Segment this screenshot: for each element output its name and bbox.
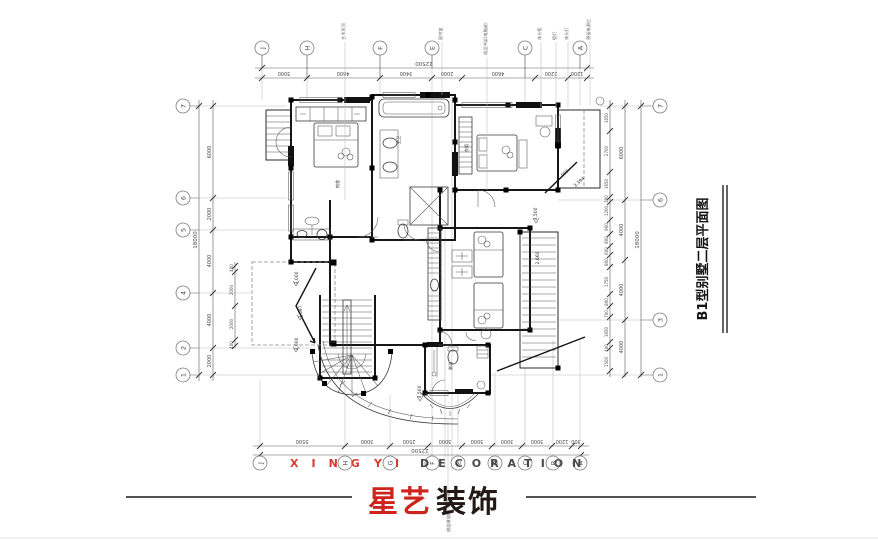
drawing-title-block: B1型别墅二层平面图 bbox=[695, 185, 727, 333]
dim-right-small: 1200 bbox=[604, 205, 609, 216]
dim-bottom-seg: 5500 bbox=[296, 438, 309, 444]
dim-left-small: 400 bbox=[229, 341, 234, 349]
dim-top-seg: 2000 bbox=[441, 70, 454, 76]
dim-top-total: 22500 bbox=[415, 60, 433, 66]
dim-bottom-seg: 3000 bbox=[501, 438, 514, 444]
dim-bottom-seg: 1200 bbox=[556, 438, 569, 444]
annotation: 艺术吊顶 bbox=[340, 22, 347, 40]
dimensions-left: 7 6 5 4 2 1 18000 6000 2000 4000 4000 20… bbox=[176, 99, 238, 382]
dim-bottom-seg: 3000 bbox=[531, 438, 544, 444]
grid-label: J bbox=[257, 462, 265, 465]
watermark-yi: YI bbox=[373, 457, 412, 470]
dim-right-small: 1750 bbox=[604, 276, 609, 287]
dim-right-mid: 4000 bbox=[619, 341, 625, 354]
logo-text-black: 装饰 bbox=[436, 485, 500, 520]
annotation: 成品书架(电脑桌) bbox=[482, 22, 489, 55]
dim-right-small: 700 bbox=[604, 310, 609, 318]
dresser-counter bbox=[293, 229, 330, 240]
grid-label: 1 bbox=[657, 373, 665, 377]
dim-top-seg: 3000 bbox=[278, 70, 291, 76]
elevation-label: 3.000 bbox=[294, 337, 300, 350]
dim-right-small: 1650 bbox=[604, 326, 609, 337]
dim-left-small: 2000 bbox=[229, 318, 234, 329]
logo-text-red: 星艺 bbox=[368, 485, 432, 520]
grid-label: 4 bbox=[180, 291, 188, 295]
floor-plan-drawing: J H F E C A 22500 3000 4600 3400 2000 46… bbox=[0, 0, 878, 540]
room-label: 梳妆 bbox=[334, 179, 341, 188]
dim-bottom-total: 22500 bbox=[411, 447, 429, 453]
dim-top-seg: 2200 bbox=[545, 70, 558, 76]
footer-logo: 星艺 装饰 bbox=[126, 485, 756, 520]
grid-label: E bbox=[429, 46, 437, 50]
room-labels: 主卫 梳妆 淋浴 衣柜 bbox=[334, 136, 470, 370]
dim-right-small: 800 bbox=[604, 236, 609, 244]
annotation: 床头灯 bbox=[563, 27, 570, 40]
dim-left-seg: 2000 bbox=[207, 355, 213, 368]
dim-right-small: 800 bbox=[604, 298, 609, 306]
watermark-xing: XING bbox=[290, 457, 373, 470]
elevation-label: 3.500 bbox=[533, 207, 539, 220]
sink bbox=[383, 138, 397, 148]
dim-right-small: 400 bbox=[604, 344, 609, 352]
dim-right-small: 900 bbox=[604, 223, 609, 231]
dim-bottom-seg: 3000 bbox=[361, 438, 374, 444]
dimensions-top: 22500 3000 4600 3400 2000 4600 2200 1200 bbox=[255, 60, 594, 81]
annotation: 预留电源位 bbox=[585, 19, 592, 40]
desk bbox=[536, 116, 552, 126]
dim-right-small: 300 bbox=[604, 195, 609, 203]
dim-left-small: 2000 bbox=[229, 284, 234, 295]
spiral-stair bbox=[310, 349, 393, 396]
dim-bottom-seg: 3000 bbox=[471, 438, 484, 444]
annotation: 窗帘盒 bbox=[437, 27, 444, 40]
bathtub bbox=[379, 99, 449, 117]
grid-label: H bbox=[304, 45, 312, 50]
dim-bottom-seg: 3000 bbox=[439, 438, 452, 444]
grid-label: 7 bbox=[180, 104, 188, 108]
elevation-label: 2.660 bbox=[535, 251, 541, 264]
grid-label: F bbox=[377, 46, 385, 50]
dim-right-small: 600 bbox=[604, 247, 609, 255]
dim-bottom-seg: 300 bbox=[571, 438, 581, 444]
dim-left-seg: 4000 bbox=[207, 314, 213, 327]
grid-label: 3 bbox=[657, 318, 665, 322]
dim-left-seg: 6000 bbox=[207, 146, 213, 159]
dim-right-small: 1650 bbox=[604, 112, 609, 123]
dim-left-small: 400 bbox=[229, 264, 234, 272]
toilet bbox=[398, 224, 408, 238]
grid-label: J bbox=[259, 47, 267, 50]
dim-right-small: 2700 bbox=[604, 145, 609, 156]
dim-right-small: 800 bbox=[604, 258, 609, 266]
grid-label: 2 bbox=[180, 346, 188, 350]
dim-top-seg: 3400 bbox=[400, 70, 413, 76]
dimensions-right: 7 6 3 1 18000 6000 4000 4000 4000 1650 2… bbox=[604, 99, 667, 382]
elevation-label: 3.500 bbox=[417, 385, 423, 398]
drawing-title: B1型别墅二层平面图 bbox=[695, 198, 711, 321]
dim-left-seg: 4000 bbox=[207, 255, 213, 268]
title-rule bbox=[723, 185, 727, 333]
dim-top-seg: 1200 bbox=[571, 70, 584, 76]
grid-label: C bbox=[522, 45, 530, 50]
grid-label: A bbox=[577, 45, 585, 50]
bay-window bbox=[421, 393, 479, 409]
dim-left-seg: 2000 bbox=[207, 208, 213, 221]
watermark-decoration: DECORATION bbox=[420, 457, 590, 470]
room-label: 主卫 bbox=[395, 136, 401, 144]
grid-label: 7 bbox=[657, 104, 665, 108]
sink bbox=[383, 162, 397, 172]
dim-right-small: 1650 bbox=[604, 178, 609, 189]
grid-bubbles-top: J H F E C A bbox=[255, 41, 587, 78]
basin bbox=[477, 381, 485, 389]
grid-label: 6 bbox=[180, 196, 188, 200]
chair bbox=[540, 127, 550, 137]
dim-right-mid: 6000 bbox=[619, 147, 625, 160]
dim-right-total: 18000 bbox=[635, 231, 641, 249]
dim-top-seg: 4600 bbox=[492, 70, 505, 76]
floor-plan-page: J H F E C A 22500 3000 4600 3400 2000 46… bbox=[0, 0, 878, 540]
dim-bottom-seg: 2500 bbox=[403, 438, 416, 444]
elevation-label: 3.697 bbox=[298, 305, 304, 318]
annotation: 壁灯 bbox=[551, 31, 558, 40]
dim-right-mid: 4000 bbox=[619, 284, 625, 297]
grid-label: 5 bbox=[180, 228, 188, 232]
leader-line bbox=[497, 337, 585, 371]
elevation-label: 3.000 bbox=[294, 271, 300, 284]
annotation: 床头柜 bbox=[536, 27, 543, 40]
dim-top-seg: 4600 bbox=[337, 70, 350, 76]
watermark: XING YI DECORATION bbox=[290, 457, 590, 470]
grid-label: 6 bbox=[657, 198, 665, 202]
dim-left-total: 18000 bbox=[193, 231, 199, 249]
armchair bbox=[466, 332, 476, 340]
dim-right-small: 1500 bbox=[604, 356, 609, 367]
dim-right-mid: 4000 bbox=[619, 224, 625, 237]
grid-label: 1 bbox=[180, 373, 188, 377]
room-label: 衣柜 bbox=[463, 144, 470, 152]
room-label: 淋浴 bbox=[447, 361, 454, 370]
bed bbox=[477, 135, 517, 171]
